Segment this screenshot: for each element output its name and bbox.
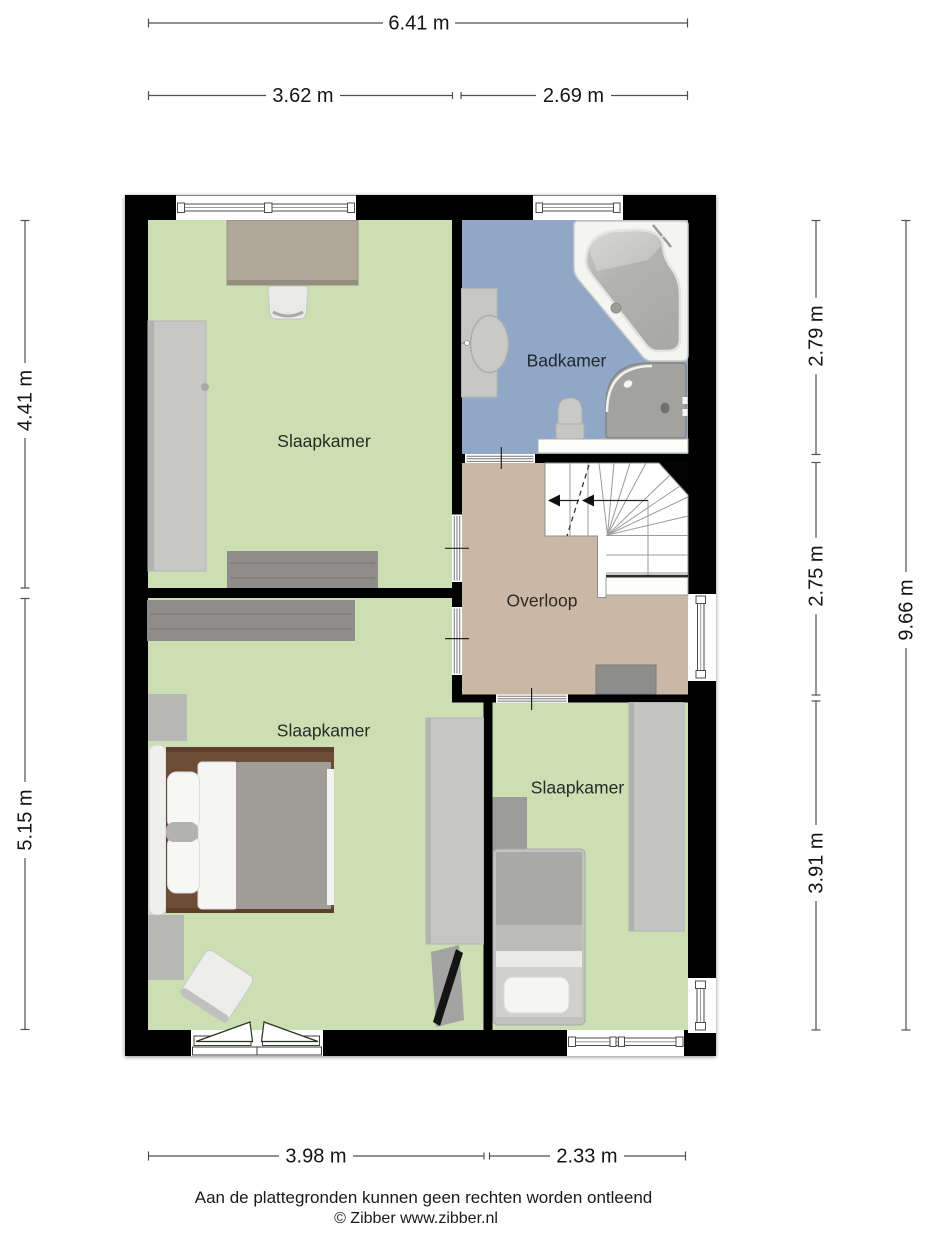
svg-text:6.41 m: 6.41 m [388,13,449,35]
svg-text:3.62 m: 3.62 m [272,85,333,107]
svg-text:Slaapkamer: Slaapkamer [531,778,625,798]
svg-text:© Zibber www.zibber.nl: © Zibber www.zibber.nl [334,1210,498,1227]
svg-text:4.41 m: 4.41 m [15,370,37,431]
svg-text:3.98 m: 3.98 m [285,1146,346,1168]
svg-text:5.15 m: 5.15 m [15,789,37,850]
svg-text:Overloop: Overloop [506,591,577,611]
svg-text:2.33 m: 2.33 m [556,1146,617,1168]
svg-text:2.79 m: 2.79 m [806,305,828,366]
svg-text:3.91 m: 3.91 m [806,832,828,893]
svg-text:Aan de plattegronden kunnen ge: Aan de plattegronden kunnen geen rechten… [195,1188,652,1207]
svg-text:Badkamer: Badkamer [527,351,607,371]
svg-text:2.75 m: 2.75 m [806,545,828,606]
svg-text:Slaapkamer: Slaapkamer [277,721,371,741]
svg-text:Slaapkamer: Slaapkamer [277,431,371,451]
svg-text:9.66 m: 9.66 m [896,579,918,640]
svg-text:2.69 m: 2.69 m [543,85,604,107]
